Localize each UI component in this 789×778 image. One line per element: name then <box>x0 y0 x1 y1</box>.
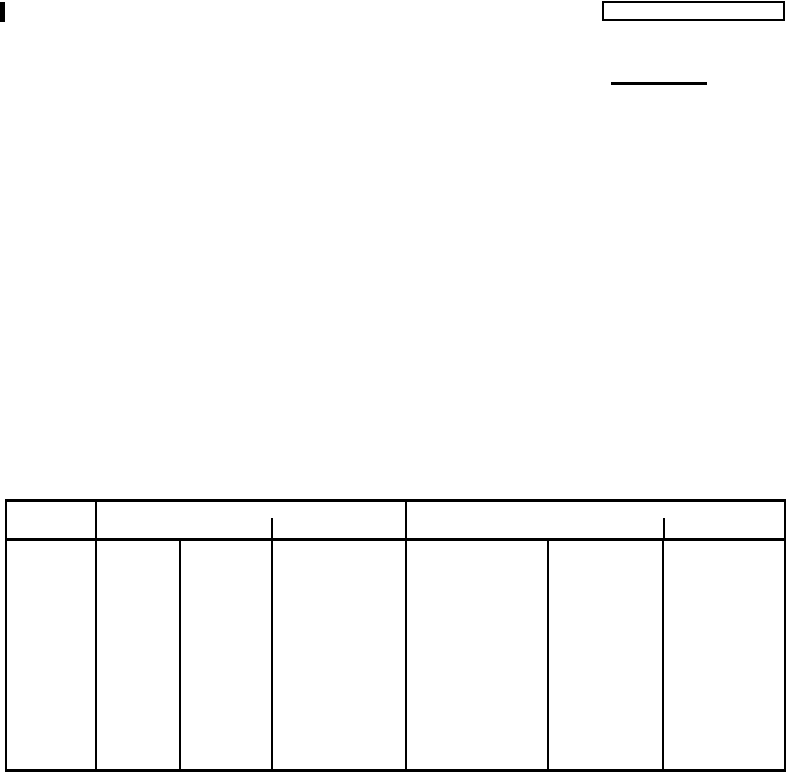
body-cell-7 <box>664 541 784 769</box>
header-cell-2 <box>97 502 407 538</box>
body-cell-2 <box>97 541 181 769</box>
body-cell-5 <box>407 541 549 769</box>
form-approval-box <box>602 1 785 21</box>
header-cell-3 <box>407 502 784 538</box>
header-subdivision-tick <box>271 518 273 538</box>
header-subdivision-tick <box>663 518 665 538</box>
body-cell-4 <box>273 541 407 769</box>
table-header-row <box>7 502 784 541</box>
body-cell-6 <box>549 541 664 769</box>
table-body-row <box>7 541 784 769</box>
header-cell-1 <box>7 502 97 538</box>
body-cell-1 <box>7 541 97 769</box>
corner-registration-mark <box>0 2 5 22</box>
body-cell-3 <box>181 541 273 769</box>
blank-underline-rule <box>611 82 707 85</box>
form-table <box>5 499 786 772</box>
